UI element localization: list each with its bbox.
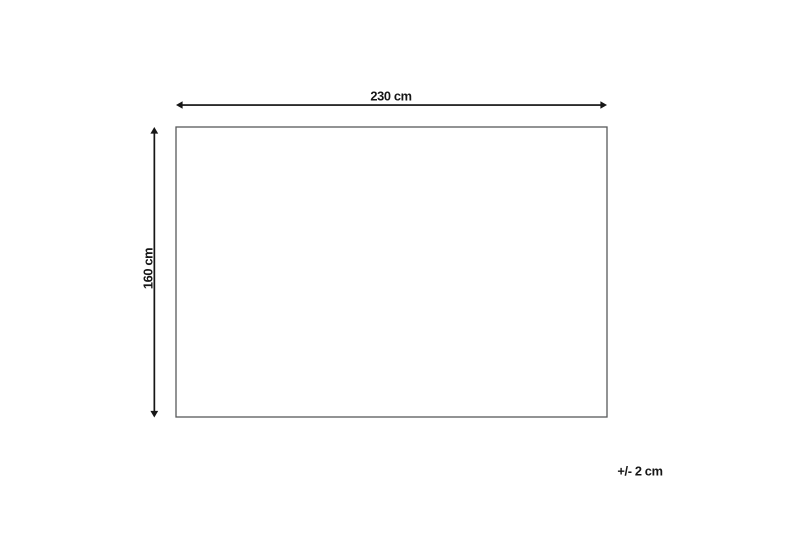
svg-text:230 cm: 230 cm (370, 89, 411, 104)
svg-text:+/- 2 cm: +/- 2 cm (617, 464, 662, 479)
svg-text:160 cm: 160 cm (141, 248, 156, 289)
